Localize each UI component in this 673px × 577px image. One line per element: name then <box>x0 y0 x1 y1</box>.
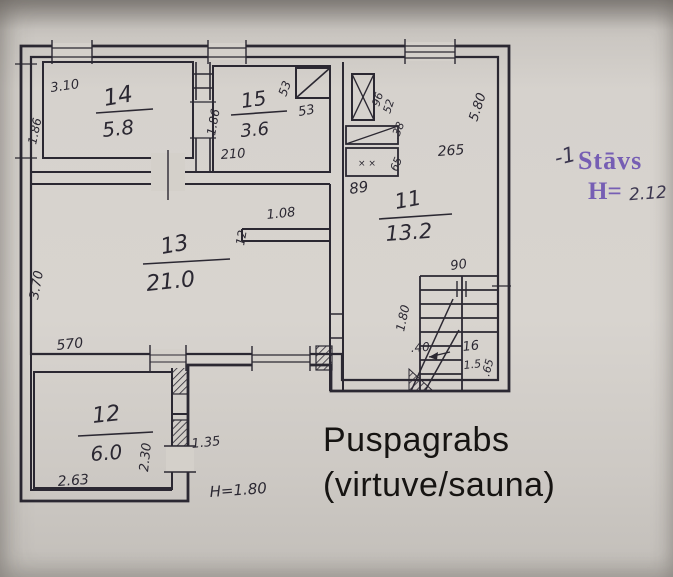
plan-label-29: 16 <box>462 338 480 355</box>
plan-label-23: 21.0 <box>145 267 196 297</box>
plan-label-36: 1.35 <box>191 434 221 452</box>
door-13-to-annex <box>150 345 186 371</box>
plan-label-16: 265 <box>437 142 465 160</box>
plan-label-3: 1.86 <box>25 116 44 145</box>
partition-13-11 <box>242 62 343 391</box>
room-fraction-bar-2 <box>143 259 230 264</box>
annex-hatch-mid <box>172 420 188 446</box>
plan-label-9: 53 <box>297 102 316 120</box>
plan-label-13: 65 <box>388 155 405 173</box>
room-fraction-bar-3 <box>379 214 452 219</box>
stamp-floor-number: -1 <box>552 142 578 170</box>
plan-label-19: 13.2 <box>385 219 433 246</box>
plan-label-31: .65 <box>479 358 496 378</box>
door-annex <box>164 446 196 472</box>
plan-label-35: 2.30 <box>137 442 155 472</box>
plan-label-21: 12 <box>233 229 249 246</box>
plan-label-32: 12 <box>91 401 121 429</box>
plan-label-20: 1.08 <box>266 205 296 223</box>
plan-label-4: 15 <box>239 86 268 113</box>
floor-stamp: -1Stāvs H=2.12 <box>556 146 673 206</box>
plan-label-12: .38 <box>389 120 408 141</box>
plan-label-11: 52 <box>380 98 397 115</box>
plan-label-25: 570 <box>56 335 84 354</box>
wall-hatch-block <box>316 346 332 370</box>
plan-label-8: 53 <box>276 79 294 98</box>
window-top-mid <box>208 40 246 64</box>
plan-label-30: 1.5 <box>463 357 482 372</box>
plan-label-15: 89 <box>348 177 369 197</box>
plan-label-33: 6.0 <box>90 440 123 466</box>
window-top-left <box>52 40 92 64</box>
chimney-53-icon <box>296 68 330 98</box>
window-top-right <box>405 39 455 64</box>
plan-label-5: 3.6 <box>240 119 270 142</box>
room-14-walls <box>43 62 193 158</box>
plan-label-34: 2.63 <box>57 472 89 490</box>
room-fraction-bar-4 <box>78 432 153 436</box>
plan-label-6: 1.86 <box>204 107 222 136</box>
room-fraction-bar-1 <box>231 111 287 115</box>
plan-label-2: 5.8 <box>101 115 135 142</box>
plan-label-26: 90 <box>449 257 467 274</box>
plan-label-27: 1.80 <box>393 303 412 332</box>
stamp-height-value: 2.12 <box>628 183 667 206</box>
stamp-floor-word: Stāvs <box>578 146 642 175</box>
stamp-height-label: H= <box>588 178 622 205</box>
room-fraction-bar-0 <box>96 109 153 113</box>
door-14-opening <box>151 150 185 200</box>
plan-label-22: 13 <box>159 230 191 259</box>
caption-line-2: (virtuve/sauna) <box>323 463 555 508</box>
floorplan-photo: 3.10145.81.86153.61.8621053539652.3865× … <box>0 0 673 577</box>
caption-line-1: Puspagrabs <box>323 418 555 463</box>
plan-label-0: 3.10 <box>49 77 80 96</box>
plan-label-1: 14 <box>102 81 135 112</box>
plan-label-28: .40 <box>410 340 430 355</box>
plan-label-7: 210 <box>220 146 246 163</box>
plan-label-18: 11 <box>393 186 423 214</box>
annotation-caption: Puspagrabs (virtuve/sauna) <box>323 418 555 508</box>
plan-label-14: × × <box>358 159 376 169</box>
window-bottom-room13 <box>252 346 310 371</box>
plan-label-37: H=1.80 <box>209 479 267 501</box>
plan-label-17: 5.80 <box>467 91 490 123</box>
